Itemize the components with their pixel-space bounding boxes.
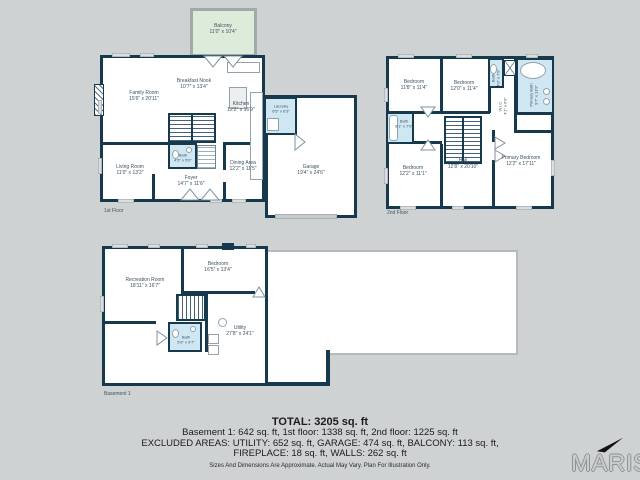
excluded-areas-text-2: FIREPLACE: 18 sq. ft, WALLS: 262 sq. ft [0, 449, 640, 460]
room-dims: 27'8" x 24'1" [226, 331, 253, 337]
floor-areas-text: Basement 1: 642 sq. ft, 1st floor: 1338 … [0, 428, 640, 439]
room-dims: 18'11" x 16'7" [126, 283, 165, 289]
area-summary: TOTAL: 3205 sq. ft Basement 1: 642 sq. f… [0, 416, 640, 469]
window [148, 244, 160, 248]
room-label-basement-bedroom: Bedroom 16'5" x 13'4" [204, 261, 231, 273]
stairs [176, 294, 206, 321]
wall [102, 321, 156, 324]
maris-logo-text: MARIS [571, 450, 640, 478]
basement-extension [268, 350, 330, 386]
sink-icon [190, 326, 196, 332]
window [100, 296, 104, 312]
bath-door-icon [156, 330, 168, 346]
basement-plan: Recreation Room 18'11" x 16'7" Bedroom 1… [0, 0, 640, 480]
window [112, 244, 128, 248]
maris-logo: MARIS [571, 436, 639, 480]
room-label-utility: Utility 27'8" x 24'1" [226, 325, 253, 337]
dryer-icon [208, 345, 219, 355]
disclaimer-text: Sizes And Dimensions Are Approximate. Ac… [0, 463, 640, 469]
floor-plan-page: Balcony 11'0" x 10'4" Family Room 15'6" … [0, 0, 640, 480]
floor-caption-basement: Basement 1 [104, 391, 131, 397]
window [246, 244, 256, 248]
wall [181, 248, 184, 294]
washer-icon [208, 334, 219, 344]
exterior-door [222, 243, 234, 250]
utility-area-outline [268, 250, 518, 355]
room-label-recreation-room: Recreation Room 18'11" x 16'7" [126, 277, 165, 289]
bedroom-door-icon [252, 286, 266, 298]
window [196, 244, 208, 248]
room-dims: 5'6" x 9'7" [177, 340, 195, 345]
room-dims: 16'5" x 13'4" [204, 267, 231, 273]
room-label-basement-bath: Bath 5'6" x 9'7" [177, 336, 195, 345]
